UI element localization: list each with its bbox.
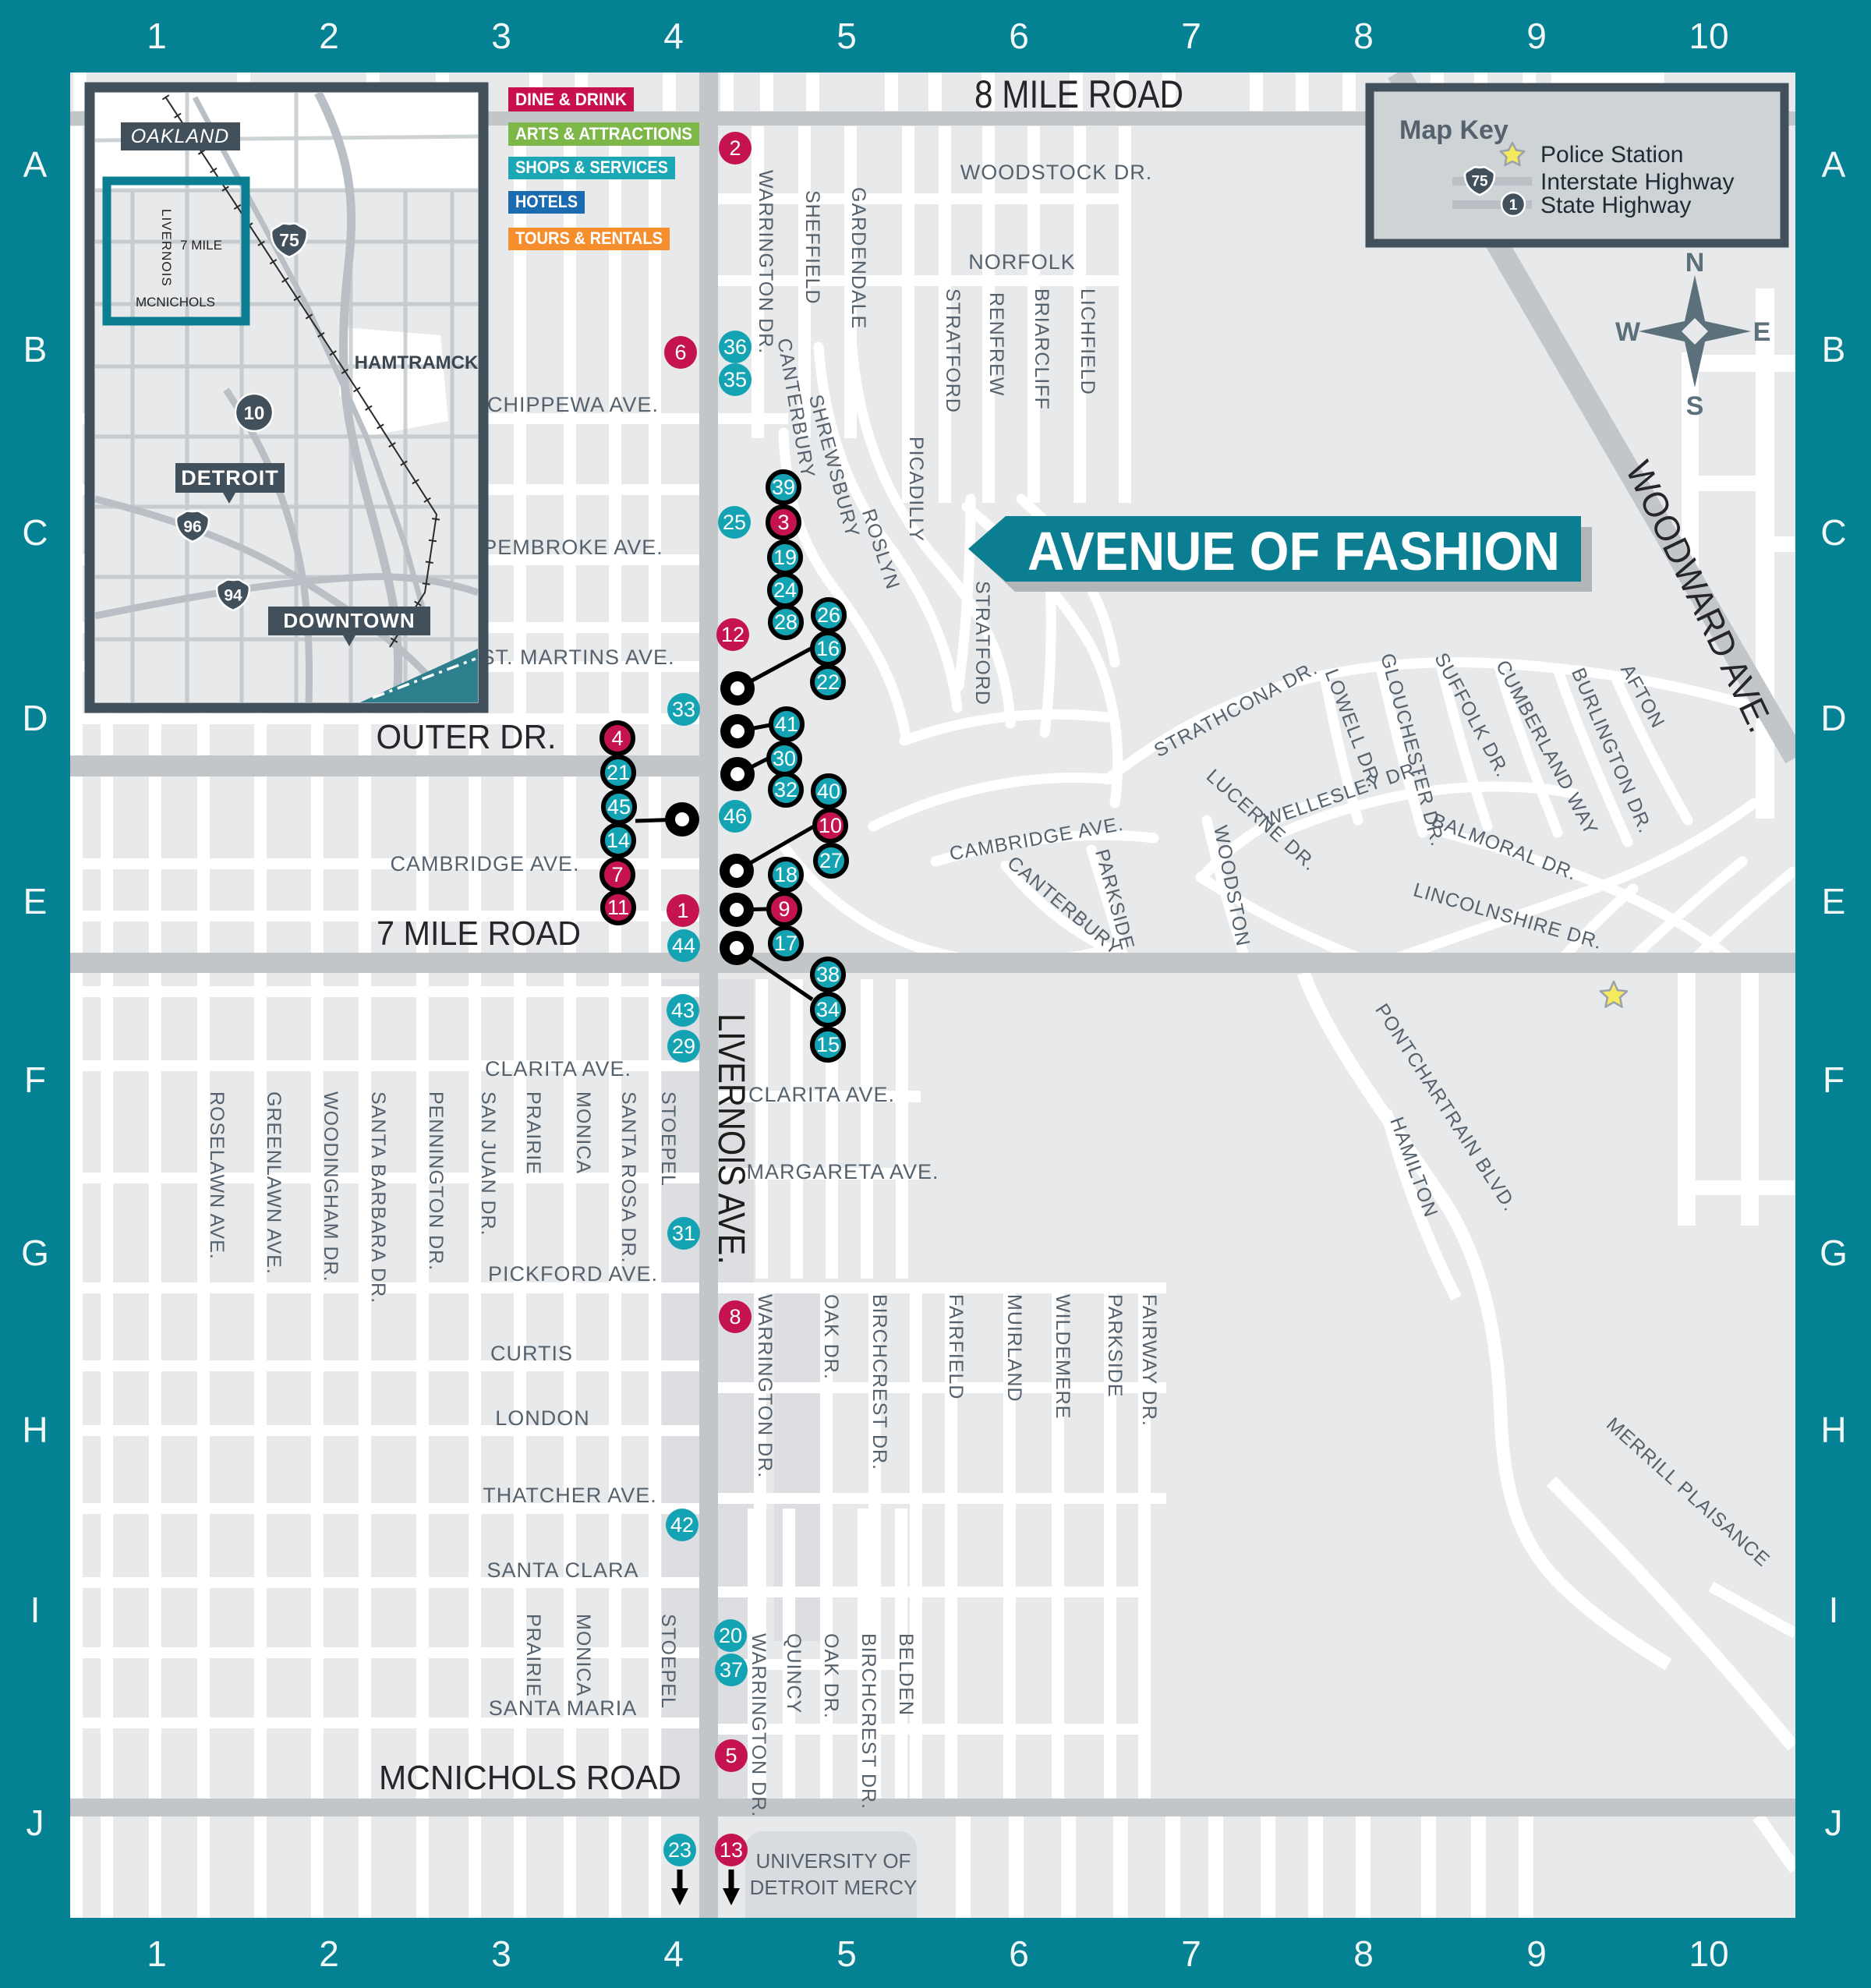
svg-text:FAIRWAY DR.: FAIRWAY DR. [1138,1294,1160,1427]
svg-text:RENFREW: RENFREW [985,292,1007,396]
svg-text:HAMTRAMCK: HAMTRAMCK [355,352,479,373]
svg-text:7 MILE: 7 MILE [180,238,222,253]
svg-text:14: 14 [607,829,630,852]
svg-text:1: 1 [677,899,688,922]
svg-text:F: F [24,1059,46,1100]
svg-text:6: 6 [674,341,686,364]
svg-text:UNIVERSITY OF: UNIVERSITY OF [756,1849,911,1873]
svg-text:1: 1 [147,1933,167,1974]
svg-text:2: 2 [729,136,741,160]
svg-text:OAKLAND: OAKLAND [131,126,229,147]
svg-text:27: 27 [819,849,843,872]
svg-text:44: 44 [672,934,695,957]
svg-text:20: 20 [719,1624,742,1647]
svg-text:13: 13 [720,1838,743,1862]
svg-text:16: 16 [816,637,840,660]
svg-text:24: 24 [773,578,797,602]
svg-text:4: 4 [663,1933,684,1974]
svg-text:PRAIRIE: PRAIRIE [522,1614,544,1697]
svg-text:I: I [1829,1590,1839,1630]
svg-text:E: E [23,881,48,921]
svg-text:DETROIT MERCY: DETROIT MERCY [750,1876,918,1899]
svg-text:CURTIS: CURTIS [490,1342,573,1365]
svg-text:N: N [1685,248,1705,278]
svg-text:PENNINGTON DR.: PENNINGTON DR. [425,1091,447,1271]
svg-text:8: 8 [1353,16,1374,56]
svg-text:30: 30 [773,747,796,770]
svg-text:I: I [30,1590,41,1630]
svg-text:PICKFORD AVE.: PICKFORD AVE. [488,1262,658,1286]
svg-text:5: 5 [836,16,857,56]
svg-text:GARDENDALE: GARDENDALE [847,187,869,329]
svg-text:WILDEMERE: WILDEMERE [1052,1294,1073,1419]
svg-text:J: J [1825,1802,1843,1843]
svg-text:J: J [27,1802,44,1843]
svg-text:W: W [1615,317,1641,347]
svg-text:25: 25 [723,511,746,534]
svg-text:G: G [1820,1233,1848,1273]
svg-text:2: 2 [319,1933,339,1974]
svg-text:E: E [1822,881,1846,921]
svg-text:75: 75 [1471,174,1488,190]
svg-text:THATCHER AVE.: THATCHER AVE. [483,1484,657,1507]
svg-text:1: 1 [147,16,167,56]
svg-text:H: H [1820,1410,1846,1450]
svg-text:MUIRLAND: MUIRLAND [1003,1294,1025,1403]
svg-text:1: 1 [1509,197,1518,214]
svg-text:CLARITA AVE.: CLARITA AVE. [748,1083,895,1106]
svg-text:PEMBROKE AVE.: PEMBROKE AVE. [483,536,663,559]
svg-text:38: 38 [816,963,840,986]
svg-text:H: H [22,1410,48,1450]
svg-text:11: 11 [607,896,629,919]
svg-text:MCNICHOLS: MCNICHOLS [136,295,215,310]
svg-text:LICHFIELD: LICHFIELD [1077,288,1098,395]
svg-text:8: 8 [729,1305,741,1328]
svg-text:96: 96 [183,518,201,536]
svg-text:Police Station: Police Station [1540,142,1683,168]
svg-text:WARRINGTON DR.: WARRINGTON DR. [748,1633,769,1817]
svg-text:12: 12 [721,623,745,646]
svg-text:23: 23 [668,1838,691,1862]
svg-text:41: 41 [775,713,798,736]
svg-text:CHIPPEWA AVE.: CHIPPEWA AVE. [487,393,659,416]
svg-text:SHOPS & SERVICES: SHOPS & SERVICES [515,157,668,177]
svg-text:29: 29 [672,1035,695,1058]
svg-text:40: 40 [817,780,840,803]
svg-text:LONDON: LONDON [495,1406,590,1430]
svg-text:10: 10 [244,403,265,424]
svg-text:18: 18 [774,863,798,886]
svg-text:7: 7 [611,863,623,886]
svg-text:WARRINGTON DR.: WARRINGTON DR. [754,1294,776,1478]
svg-text:AVENUE OF FASHION: AVENUE OF FASHION [1027,521,1560,582]
svg-text:15: 15 [816,1033,840,1056]
svg-text:SANTA ROSA DR.: SANTA ROSA DR. [617,1091,639,1264]
svg-text:MONICA: MONICA [572,1091,594,1174]
svg-text:C: C [1820,512,1846,553]
svg-text:39: 39 [772,476,795,499]
svg-text:8 MILE ROAD: 8 MILE ROAD [974,73,1183,116]
svg-text:B: B [23,329,48,370]
svg-text:7: 7 [1181,16,1201,56]
svg-text:MCNICHOLS ROAD: MCNICHOLS ROAD [379,1759,681,1797]
svg-text:MARGARETA AVE.: MARGARETA AVE. [746,1160,939,1183]
svg-text:32: 32 [774,778,798,801]
svg-text:34: 34 [816,998,840,1021]
svg-text:42: 42 [670,1513,694,1537]
svg-text:SANTA BARBARA DR.: SANTA BARBARA DR. [367,1091,389,1304]
svg-text:HOTELS: HOTELS [515,192,578,211]
svg-text:PARKSIDE: PARKSIDE [1104,1294,1126,1398]
svg-text:3: 3 [491,16,511,56]
svg-text:31: 31 [672,1222,695,1245]
svg-text:SANTA MARIA: SANTA MARIA [489,1696,638,1720]
svg-text:9: 9 [1526,1933,1547,1974]
svg-text:75: 75 [279,230,299,250]
svg-text:19: 19 [773,546,797,569]
svg-text:36: 36 [723,335,747,359]
svg-text:4: 4 [611,727,623,750]
svg-text:45: 45 [607,795,631,819]
svg-text:7: 7 [1181,1933,1201,1974]
svg-text:DINE & DRINK: DINE & DRINK [515,90,627,109]
svg-text:E: E [1753,317,1771,347]
svg-text:D: D [22,698,48,738]
svg-text:STRATFORD: STRATFORD [971,581,993,706]
svg-text:ROSELAWN AVE.: ROSELAWN AVE. [206,1091,228,1260]
svg-text:A: A [23,144,48,185]
svg-text:DOWNTOWN: DOWNTOWN [283,609,415,632]
svg-text:CLARITA AVE.: CLARITA AVE. [485,1057,631,1081]
svg-text:ARTS & ATTRACTIONS: ARTS & ATTRACTIONS [515,124,692,143]
svg-text:BRIARCLIFF: BRIARCLIFF [1031,288,1052,410]
svg-text:SANTA CLARA: SANTA CLARA [486,1558,638,1582]
svg-text:4: 4 [663,16,684,56]
svg-text:OAK DR.: OAK DR. [820,1633,842,1719]
svg-text:9: 9 [1526,16,1547,56]
svg-text:17: 17 [774,932,798,955]
svg-text:3: 3 [777,511,789,534]
svg-text:LIVERNOIS AVE.: LIVERNOIS AVE. [710,1013,752,1265]
svg-text:7 MILE ROAD: 7 MILE ROAD [377,914,581,953]
svg-text:10: 10 [819,814,842,837]
svg-text:Interstate Highway: Interstate Highway [1540,169,1734,195]
svg-text:MONICA: MONICA [572,1614,594,1696]
svg-text:S: S [1686,391,1704,421]
svg-text:9: 9 [778,897,790,921]
svg-text:5: 5 [725,1744,737,1767]
svg-text:QUINCY: QUINCY [783,1633,805,1714]
svg-text:SHEFFIELD: SHEFFIELD [801,190,823,305]
svg-text:BELDEN: BELDEN [895,1633,917,1716]
svg-text:35: 35 [723,368,747,391]
svg-text:8: 8 [1353,1933,1374,1974]
svg-text:BIRCHCREST DR.: BIRCHCREST DR. [868,1294,890,1470]
svg-text:10: 10 [1689,16,1728,56]
svg-text:BIRCHCREST DR.: BIRCHCREST DR. [858,1633,879,1809]
svg-text:STOEPEL: STOEPEL [657,1614,679,1709]
svg-text:WOODSTOCK DR.: WOODSTOCK DR. [960,161,1153,184]
svg-text:WOODINGHAM DR.: WOODINGHAM DR. [320,1091,341,1282]
svg-text:46: 46 [723,805,747,828]
svg-text:26: 26 [817,603,840,627]
svg-text:STOEPEL: STOEPEL [657,1091,679,1187]
svg-text:10: 10 [1689,1933,1728,1974]
svg-text:G: G [21,1233,49,1273]
svg-text:94: 94 [224,586,242,604]
svg-text:SAN JUAN DR.: SAN JUAN DR. [477,1091,499,1236]
svg-text:3: 3 [491,1933,511,1974]
svg-text:State Highway: State Highway [1540,193,1691,218]
svg-text:STRATFORD: STRATFORD [942,288,964,413]
svg-text:2: 2 [319,16,339,56]
svg-text:WARRINGTON DR.: WARRINGTON DR. [755,170,776,354]
svg-text:43: 43 [671,999,695,1022]
svg-text:B: B [1822,329,1846,370]
svg-text:CAMBRIDGE AVE.: CAMBRIDGE AVE. [390,852,579,875]
svg-text:TOURS & RENTALS: TOURS & RENTALS [515,228,663,248]
svg-text:OUTER DR.: OUTER DR. [377,718,557,756]
svg-text:22: 22 [816,670,840,694]
svg-text:D: D [1820,698,1846,738]
svg-text:DETROIT: DETROIT [181,466,279,490]
svg-text:F: F [1823,1059,1844,1100]
svg-text:ST. MARTINS AVE.: ST. MARTINS AVE. [480,646,674,669]
svg-text:C: C [22,512,48,553]
svg-text:37: 37 [720,1658,743,1682]
svg-text:Map Key: Map Key [1399,115,1508,145]
svg-text:PICADILLY: PICADILLY [905,437,927,542]
svg-text:5: 5 [836,1933,857,1974]
svg-text:GREENLAWN AVE.: GREENLAWN AVE. [263,1091,285,1275]
svg-text:28: 28 [774,610,798,634]
svg-text:OAK DR.: OAK DR. [820,1294,842,1380]
svg-text:FAIRFIELD: FAIRFIELD [945,1294,967,1399]
svg-text:LIVERNOIS: LIVERNOIS [159,209,174,287]
svg-text:PRAIRIE: PRAIRIE [522,1091,544,1175]
svg-text:6: 6 [1009,16,1029,56]
svg-text:33: 33 [672,698,695,721]
svg-text:21: 21 [607,761,630,784]
svg-text:NORFOLK: NORFOLK [968,250,1076,274]
svg-text:6: 6 [1009,1933,1029,1974]
svg-text:A: A [1822,144,1846,185]
